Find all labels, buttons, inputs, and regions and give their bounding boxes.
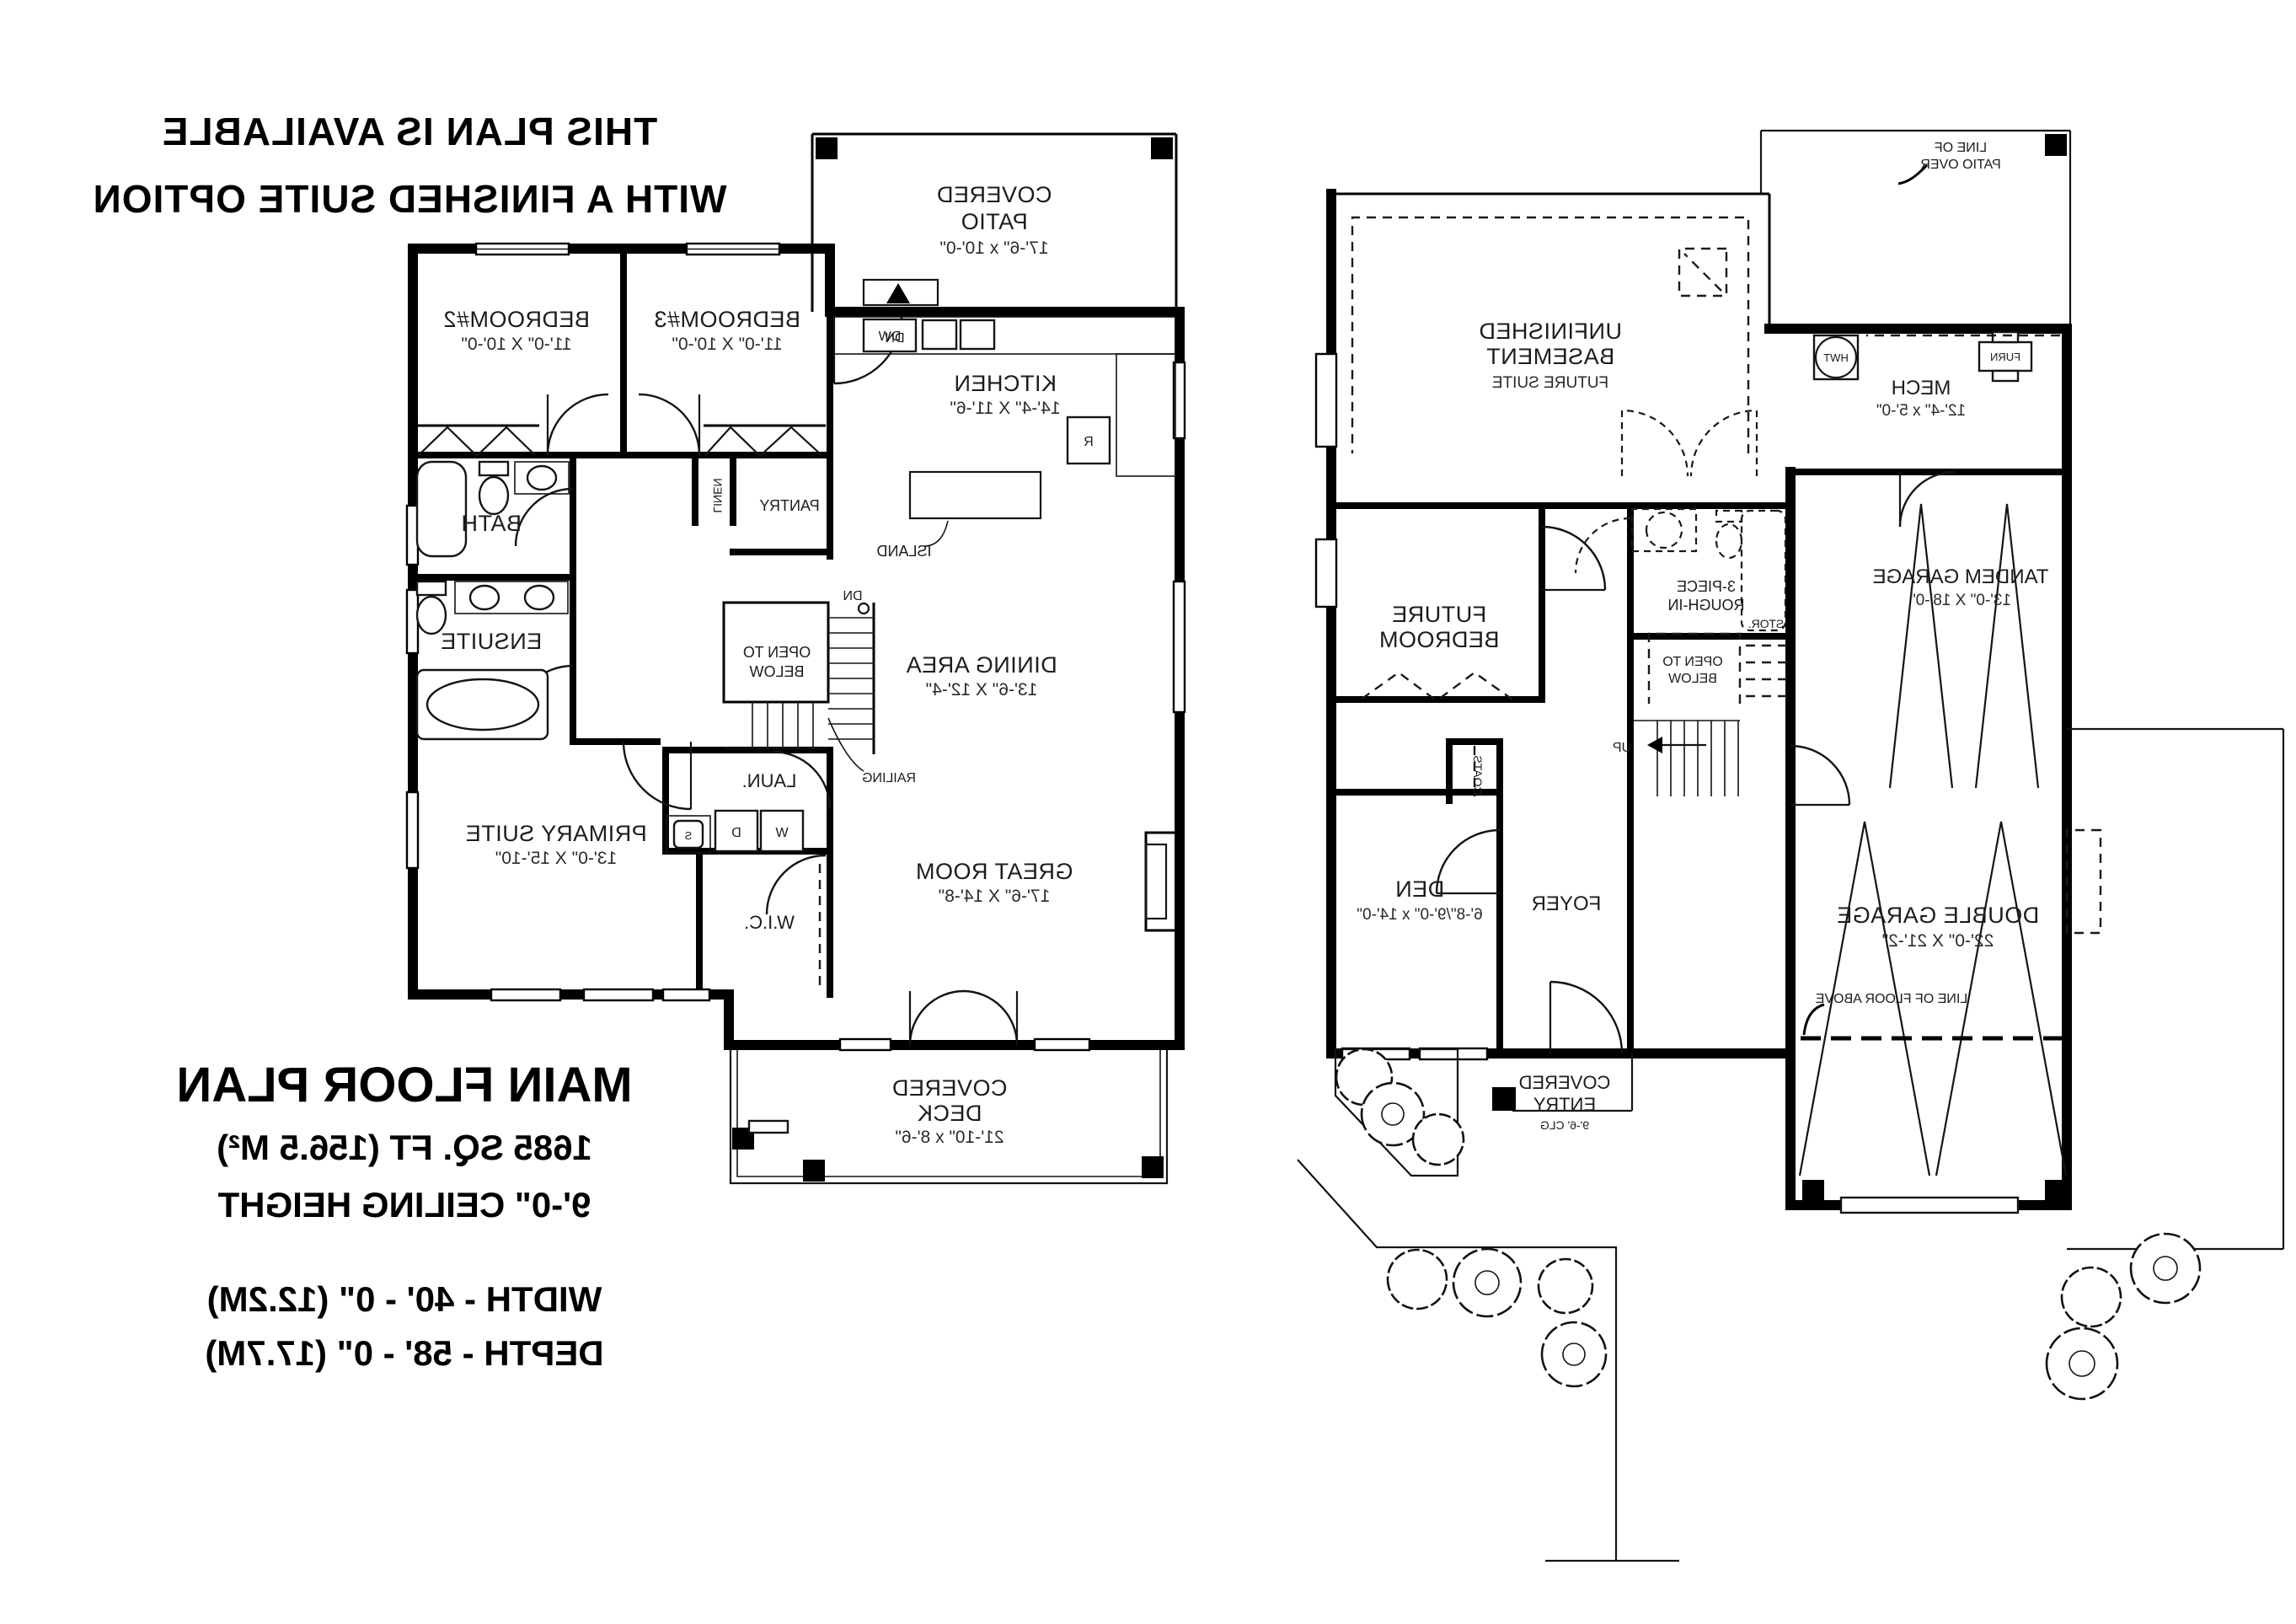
interior-walls [413,249,830,994]
line-floor-above-label: LINE OF FLOOR ABOVE [1816,992,1968,1006]
future-bedroom-label2: BEDROOM [1378,627,1499,652]
den-label: DEN [1395,876,1445,902]
bedroom3-dims: 11'-0" X 10'-0" [672,335,782,354]
den-dims: 6'-8"/9'-0" x 14'-0" [1357,906,1482,924]
door-arc-icon [767,855,826,914]
shrub-icon [2062,1268,2121,1327]
tandem-garage-dims: 13'-0" X 18'-0" [1910,592,2011,609]
covered-deck-label2: DECK [917,1101,982,1126]
open-below-label2: BELOW [749,663,804,680]
availability-note: THIS PLAN IS AVAILABLE WITH A FINISHED S… [93,110,727,221]
bath-fixtures [417,462,569,556]
covered-entry-label: COVERED [1519,1072,1611,1093]
bedroom2-label: BEDROOM#2 [443,307,590,332]
bifold-door-icon [419,427,535,455]
kitchen-dims: 14'-4" X 11'-6" [950,399,1060,418]
toilet-icon [479,477,508,514]
wic-label: W.I.C. [744,912,795,933]
plan-title: MAIN FLOOR PLAN [176,1058,632,1112]
future-suite-label: FUTURE SUITE [1492,374,1608,392]
window-icon [663,989,709,1000]
door-arc-icon [548,394,608,455]
dining-dims: 13'-6" X 12'-4" [926,680,1038,699]
foyer-label: FOYER [1532,892,1602,915]
french-door-arc-icon [910,991,964,1045]
shrub-icon [1542,1322,1606,1386]
patio-post-icon [816,137,838,159]
window-icon [584,989,653,1000]
mech-room [1814,332,2060,527]
great-room-label: GREAT ROOM [915,859,1073,884]
stor-label: STOR. [1748,617,1785,630]
island-label: ISLAND [876,543,931,560]
door-arc-icon [1550,982,1622,1053]
toilet-tank-icon [1716,511,1742,522]
mech-label: MECH [1892,377,1951,399]
sink-label: S [684,829,692,842]
covered-patio-dims: 17'-6" x 10'-0" [939,239,1048,258]
kitchen-fixtures [834,317,1175,546]
plan-info-block: MAIN FLOOR PLAN 1685 SQ. FT (156.5 M²) 9… [176,1058,632,1373]
window-icon [407,792,418,868]
shrub-icon [1388,1250,1447,1309]
furn-label: FURN [1990,351,2020,363]
deck-post-icon [803,1160,825,1182]
door-arc-icon [1900,472,1955,527]
line-of-patio-label2: PATIO OVER [1920,158,2000,172]
bedroom3-label: BEDROOM#3 [654,307,800,332]
shrub-icon [2047,1328,2117,1399]
unfinished-basement-walls [1331,194,1769,590]
floorplan-canvas: THIS PLAN IS AVAILABLE WITH A FINISHED S… [0,0,2296,1624]
covered-deck-dims: 21'-10" x 8'-6" [895,1128,1003,1147]
window-icon [1035,1039,1089,1050]
patio-post-icon [1151,137,1173,159]
double-garage-label: DOUBLE GARAGE [1837,903,2040,928]
window-icon [840,1039,891,1050]
unfinished-basement-label: UNFINISHED [1479,319,1622,344]
unfinished-basement-label2: BASEMENT [1486,344,1615,369]
plan-area: 1685 SQ. FT (156.5 M²) [217,1128,592,1167]
window-icon [1316,539,1336,607]
up-label: UP [1613,741,1631,755]
bifold-door-icon [705,427,822,455]
toilet-tank-icon [479,462,508,475]
range-label: R [1084,435,1094,449]
ensuite-label: ENSUITE [441,629,543,654]
primary-suite-dims: 13'-0" X 15'-10" [495,849,617,868]
future-bedroom-label: FUTURE [1392,602,1487,627]
tandem-garage-label: TANDEM GARAGE [1873,565,2049,588]
toilet-tank-icon [417,582,446,595]
railing-label: RAILING [862,771,916,785]
main-floor-plan: COVERED PATIO 17'-6" x 10'-0" DN BEDROOM… [407,134,1185,1183]
plan-width: WIDTH - 40' - 0" (12.2M) [207,1279,602,1319]
ensuite-fixtures [417,582,568,739]
bs-open-below-label: OPEN TO [1662,655,1722,669]
linen-label: LINEN [711,478,725,512]
great-room-dims: 17'-6" X 14'-8" [939,887,1051,906]
stairs-dn-label: DN [843,589,862,603]
dryer-label: D [731,826,741,840]
window-icon [1174,582,1185,712]
dishwasher-label: DW [878,330,902,344]
sink-icon [961,320,994,349]
roughin-label2: ROUGH-IN [1668,597,1745,614]
dining-label: DINING AREA [906,652,1057,678]
covered-patio-label2: PATIO [961,209,1028,234]
bathtub-icon [427,679,538,730]
entry-post-icon [1492,1087,1516,1111]
washer-label: W [775,826,789,840]
basement-plan: LINE OF PATIO OVER UNFINISHED BASEMENT F… [1298,131,2283,1561]
mech-dims: 12'-4" x 5'-0" [1876,402,1966,420]
shrub-icon [1539,1259,1592,1313]
covered-deck-label: COVERED [891,1075,1007,1101]
bathtub-icon [417,462,466,556]
stairwell [724,603,874,771]
patio-post-icon [2045,134,2067,156]
door-arc-icon [516,489,573,546]
shrub-icon [1453,1249,1521,1316]
coats-label: COATS [1471,755,1485,795]
window-icon [1316,354,1336,447]
double-garage-dims: 22'-0" X 21'-2" [1882,931,1994,951]
up-arrow-icon [1647,737,1662,753]
window-icon [407,590,418,653]
pantry-label: PANTRY [759,497,819,514]
bedroom2-dims: 11'-0" X 10'-0" [461,335,571,354]
door-arc-icon [1437,830,1500,893]
laundry-label: LAUN. [742,770,797,791]
kitchen-label: KITCHEN [954,371,1057,396]
line-of-patio-label: LINE OF [1935,141,1987,155]
availability-line2: WITH A FINISHED SUITE OPTION [93,177,727,221]
door-arc-icon [1790,746,1849,805]
window-icon [491,989,560,1000]
covered-entry-label2: ENTRY [1533,1094,1596,1115]
covered-patio-label: COVERED [936,182,1052,207]
bathtub-icon [1742,511,1785,630]
hwt-label: HWT [1823,351,1849,364]
plan-depth: DEPTH - 58' - 0" (17.7M) [205,1333,603,1373]
deck-post-icon [1142,1156,1164,1178]
patio-over-outline [1761,131,2070,329]
step-arrow-icon [886,283,910,303]
covered-entry-clg: 9'-6' CLG [1540,1118,1589,1132]
floorplan-sheet: THIS PLAN IS AVAILABLE WITH A FINISHED S… [0,0,2296,1624]
plan-ceiling: 9'-0" CEILING HEIGHT [217,1185,591,1225]
garage-wedges [1794,504,2067,1213]
door-arc-icon [639,394,699,455]
sink-icon [923,320,956,349]
sink-icon [1646,512,1682,548]
sink-icon [527,466,556,490]
primary-suite-label: PRIMARY SUITE [465,821,647,846]
bath-label: BATH [461,511,522,536]
fireplace-niche [1146,833,1176,930]
sink-icon [525,586,554,609]
open-below-label: OPEN TO [743,644,811,661]
roughin-label: 3-PIECE [1677,578,1736,595]
availability-line1: THIS PLAN IS AVAILABLE [162,110,658,153]
sink-icon [470,586,499,609]
toilet-icon [1716,524,1742,558]
island-icon [910,472,1041,518]
shrub-icon [2131,1234,2200,1303]
shrub-icon [1413,1114,1464,1165]
french-door-arc-icon [963,991,1017,1045]
bs-open-below-label2: BELOW [1667,672,1717,686]
